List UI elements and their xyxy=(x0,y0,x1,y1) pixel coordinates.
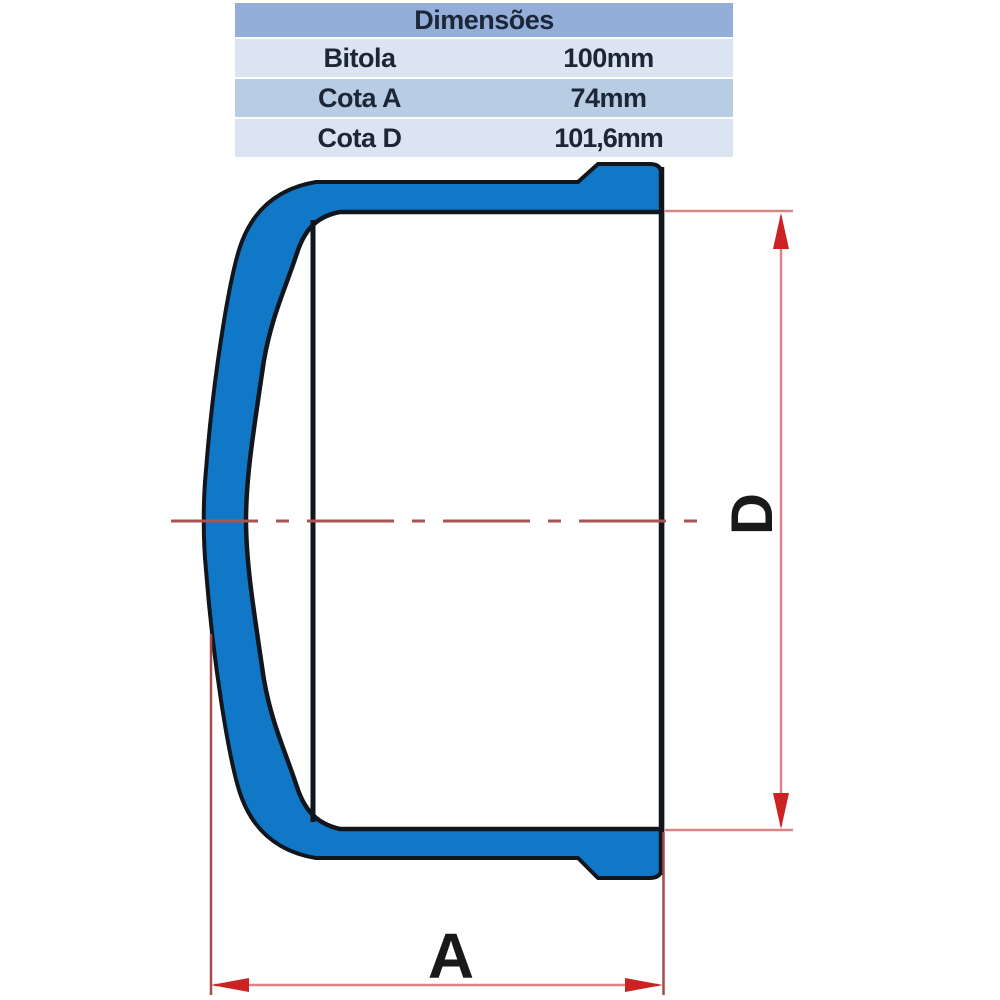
svg-text:D: D xyxy=(720,493,785,535)
svg-text:A: A xyxy=(428,920,474,992)
